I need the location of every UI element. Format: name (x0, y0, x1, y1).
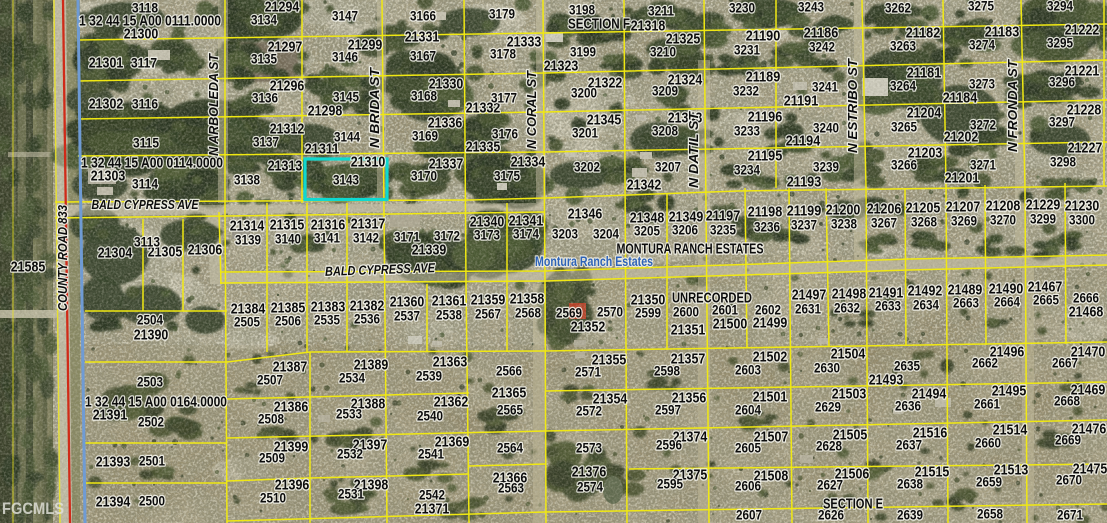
svg-text:3113: 3113 (134, 234, 160, 249)
svg-text:3136: 3136 (252, 90, 278, 105)
svg-text:3144: 3144 (334, 129, 360, 144)
svg-text:2510: 2510 (260, 490, 286, 505)
svg-text:2660: 2660 (975, 435, 1001, 450)
svg-text:3231: 3231 (734, 42, 760, 57)
svg-text:2504: 2504 (137, 312, 163, 327)
svg-text:2659: 2659 (976, 474, 1002, 489)
svg-text:3295: 3295 (1047, 35, 1073, 50)
svg-text:2506: 2506 (275, 313, 301, 328)
svg-text:3234: 3234 (734, 162, 760, 177)
svg-text:21390: 21390 (134, 328, 169, 344)
svg-text:3134: 3134 (251, 12, 277, 27)
svg-text:2627: 2627 (817, 477, 843, 492)
svg-text:2599: 2599 (635, 305, 661, 320)
svg-text:3273: 3273 (969, 76, 995, 91)
svg-text:3264: 3264 (890, 78, 916, 93)
svg-text:3138: 3138 (234, 172, 260, 187)
svg-text:3206: 3206 (672, 222, 698, 237)
svg-text:21346: 21346 (568, 207, 603, 223)
svg-text:2534: 2534 (339, 370, 365, 385)
svg-text:N CORAL ST: N CORAL ST (524, 70, 539, 149)
svg-text:3275: 3275 (968, 0, 994, 13)
svg-text:21323: 21323 (544, 59, 579, 75)
svg-text:3117: 3117 (131, 55, 157, 70)
svg-text:3237: 3237 (791, 217, 817, 232)
svg-text:2536: 2536 (354, 311, 380, 326)
svg-text:3168: 3168 (411, 88, 437, 103)
svg-text:2607: 2607 (736, 507, 762, 522)
svg-text:2605: 2605 (735, 440, 761, 455)
svg-text:1 32 44 15 A00 0111.0000: 1 32 44 15 A00 0111.0000 (79, 13, 221, 29)
svg-text:SECTION E: SECTION E (823, 496, 883, 512)
svg-text:2671: 2671 (1057, 507, 1083, 522)
svg-text:2631: 2631 (795, 301, 821, 316)
svg-text:3298: 3298 (1050, 154, 1076, 169)
svg-text:3274: 3274 (969, 37, 995, 52)
svg-text:3200: 3200 (571, 85, 597, 100)
svg-text:21306: 21306 (188, 243, 223, 259)
svg-text:2539: 2539 (416, 368, 442, 383)
svg-text:3240: 3240 (813, 120, 839, 135)
svg-text:2570: 2570 (597, 304, 623, 319)
svg-text:FGCMLS: FGCMLS (2, 499, 64, 518)
svg-text:3300: 3300 (1069, 212, 1095, 227)
svg-text:3171: 3171 (394, 229, 420, 244)
svg-text:BALD CYPRESS AVE: BALD CYPRESS AVE (92, 197, 199, 212)
svg-text:3265: 3265 (891, 119, 917, 134)
svg-text:2604: 2604 (735, 402, 761, 417)
svg-text:2629: 2629 (815, 399, 841, 414)
svg-text:2606: 2606 (735, 478, 761, 493)
svg-text:3142: 3142 (353, 230, 379, 245)
svg-text:3170: 3170 (411, 168, 437, 183)
svg-text:2501: 2501 (139, 453, 165, 468)
svg-text:21331: 21331 (405, 30, 440, 46)
svg-text:3236: 3236 (754, 219, 780, 234)
svg-text:2568: 2568 (515, 305, 541, 320)
svg-text:2535: 2535 (314, 312, 340, 327)
svg-text:2572: 2572 (576, 403, 602, 418)
svg-text:2531: 2531 (338, 486, 364, 501)
svg-text:3114: 3114 (132, 176, 158, 191)
svg-text:3272: 3272 (970, 117, 996, 132)
svg-text:3176: 3176 (492, 126, 518, 141)
svg-text:3202: 3202 (574, 159, 600, 174)
svg-text:3232: 3232 (733, 83, 759, 98)
svg-text:3242: 3242 (809, 39, 835, 54)
svg-text:3199: 3199 (570, 44, 596, 59)
svg-text:3209: 3209 (652, 83, 678, 98)
svg-text:3296: 3296 (1049, 74, 1075, 89)
svg-text:2603: 2603 (735, 362, 761, 377)
svg-text:2636: 2636 (895, 398, 921, 413)
svg-text:2566: 2566 (496, 363, 522, 378)
svg-text:2662: 2662 (972, 355, 998, 370)
svg-text:3116: 3116 (132, 96, 158, 111)
svg-text:2639: 2639 (897, 507, 923, 522)
svg-text:3147: 3147 (332, 8, 358, 23)
svg-text:3178: 3178 (490, 46, 516, 61)
svg-text:2665: 2665 (1033, 292, 1059, 307)
svg-text:21585: 21585 (11, 260, 46, 276)
svg-text:2666: 2666 (1073, 290, 1099, 305)
svg-text:3210: 3210 (650, 44, 676, 59)
svg-text:2668: 2668 (1054, 393, 1080, 408)
svg-text:UNRECORDED: UNRECORDED (672, 290, 752, 306)
svg-text:21468: 21468 (1069, 305, 1104, 321)
svg-text:3174: 3174 (513, 226, 539, 241)
svg-text:3173: 3173 (474, 227, 500, 242)
svg-text:2532: 2532 (337, 446, 363, 461)
svg-text:21310: 21310 (351, 155, 386, 171)
svg-text:3243: 3243 (798, 0, 824, 14)
svg-text:2509: 2509 (259, 450, 285, 465)
svg-text:21371: 21371 (415, 502, 450, 518)
svg-text:3139: 3139 (235, 232, 261, 247)
svg-text:21302: 21302 (89, 97, 124, 113)
svg-text:2505: 2505 (234, 314, 260, 329)
svg-text:3172: 3172 (434, 228, 460, 243)
svg-text:N ARBOLEDA ST: N ARBOLEDA ST (206, 53, 221, 156)
svg-text:3175: 3175 (494, 168, 520, 183)
svg-text:3169: 3169 (412, 128, 438, 143)
svg-text:2628: 2628 (816, 438, 842, 453)
svg-text:21342: 21342 (627, 178, 662, 194)
svg-text:3198: 3198 (569, 2, 595, 17)
svg-text:2632: 2632 (834, 300, 860, 315)
svg-text:2600: 2600 (673, 304, 699, 319)
svg-text:21201: 21201 (945, 171, 980, 187)
svg-text:2563: 2563 (498, 480, 524, 495)
svg-text:21352: 21352 (571, 320, 606, 336)
svg-text:21184: 21184 (943, 91, 978, 107)
svg-text:21304: 21304 (98, 246, 133, 262)
svg-text:3135: 3135 (251, 51, 277, 66)
svg-text:3115: 3115 (133, 135, 159, 150)
svg-text:2595: 2595 (657, 476, 683, 491)
svg-text:2571: 2571 (575, 364, 601, 379)
svg-text:2661: 2661 (974, 396, 1000, 411)
svg-text:21298: 21298 (308, 104, 343, 120)
svg-text:2540: 2540 (417, 408, 443, 423)
svg-text:2541: 2541 (418, 446, 444, 461)
svg-text:Montura Ranch Estates: Montura Ranch Estates (535, 254, 653, 269)
svg-text:21193: 21193 (787, 175, 822, 191)
svg-text:2634: 2634 (913, 297, 939, 312)
svg-text:21313: 21313 (268, 159, 303, 175)
svg-text:2638: 2638 (897, 476, 923, 491)
svg-text:3267: 3267 (871, 215, 897, 230)
svg-text:3179: 3179 (489, 6, 515, 21)
svg-text:2573: 2573 (576, 440, 602, 455)
svg-text:3294: 3294 (1047, 0, 1073, 13)
svg-text:2602: 2602 (755, 302, 781, 317)
svg-text:2574: 2574 (577, 479, 603, 494)
svg-text:2664: 2664 (994, 294, 1020, 309)
svg-text:3299: 3299 (1030, 211, 1056, 226)
svg-text:2502: 2502 (138, 414, 164, 429)
svg-text:3263: 3263 (890, 38, 916, 53)
svg-text:2630: 2630 (814, 360, 840, 375)
svg-text:N FRONDA ST: N FRONDA ST (1005, 59, 1020, 152)
svg-text:3167: 3167 (410, 48, 436, 63)
svg-text:3207: 3207 (655, 159, 681, 174)
svg-text:21351: 21351 (671, 323, 706, 339)
svg-text:2564: 2564 (497, 440, 523, 455)
svg-text:2503: 2503 (137, 374, 163, 389)
svg-text:2663: 2663 (953, 295, 979, 310)
svg-text:3271: 3271 (970, 157, 996, 172)
svg-text:3201: 3201 (572, 125, 598, 140)
svg-text:3137: 3137 (253, 134, 279, 149)
svg-text:2667: 2667 (1052, 355, 1078, 370)
svg-text:3177: 3177 (491, 90, 517, 105)
svg-text:2567: 2567 (475, 306, 501, 321)
svg-text:21335: 21335 (466, 140, 501, 156)
svg-text:2598: 2598 (654, 363, 680, 378)
svg-text:2507: 2507 (257, 372, 283, 387)
svg-text:2569: 2569 (556, 305, 582, 320)
svg-text:2542: 2542 (419, 487, 445, 502)
svg-text:3241: 3241 (812, 79, 838, 94)
svg-text:2508: 2508 (258, 411, 284, 426)
svg-text:1 32 44 15 A00 0114.0000: 1 32 44 15 A00 0114.0000 (81, 155, 223, 171)
svg-text:3140: 3140 (275, 231, 301, 246)
svg-text:1 32 44 15 A00 0164.0000: 1 32 44 15 A00 0164.0000 (85, 394, 227, 410)
svg-text:2670: 2670 (1056, 472, 1082, 487)
svg-text:2538: 2538 (436, 307, 462, 322)
svg-text:2597: 2597 (655, 402, 681, 417)
svg-text:21393: 21393 (96, 455, 131, 471)
svg-text:3235: 3235 (710, 222, 736, 237)
svg-text:3238: 3238 (831, 216, 857, 231)
svg-text:21198: 21198 (748, 205, 783, 221)
svg-text:N ESTRIBO ST: N ESTRIBO ST (845, 58, 860, 153)
svg-text:21365: 21365 (492, 386, 527, 402)
svg-text:2635: 2635 (894, 358, 920, 373)
svg-text:N DATIL ST: N DATIL ST (686, 111, 701, 188)
svg-text:3239: 3239 (813, 159, 839, 174)
svg-text:2637: 2637 (896, 437, 922, 452)
svg-text:COUNTY ROAD 833: COUNTY ROAD 833 (55, 204, 70, 311)
svg-text:3205: 3205 (634, 223, 660, 238)
svg-text:2633: 2633 (875, 298, 901, 313)
svg-text:21191: 21191 (784, 94, 819, 110)
svg-text:2596: 2596 (656, 437, 682, 452)
svg-text:21301: 21301 (89, 56, 124, 72)
svg-text:3270: 3270 (990, 212, 1016, 227)
svg-text:2565: 2565 (497, 402, 523, 417)
svg-text:21318: 21318 (631, 19, 666, 35)
svg-text:3268: 3268 (911, 214, 937, 229)
svg-text:3297: 3297 (1049, 114, 1075, 129)
svg-text:2658: 2658 (977, 506, 1003, 521)
svg-text:3204: 3204 (593, 226, 619, 241)
svg-text:2537: 2537 (394, 308, 420, 323)
svg-text:3262: 3262 (885, 0, 911, 15)
svg-text:21394: 21394 (96, 495, 131, 511)
svg-text:3203: 3203 (552, 226, 578, 241)
svg-text:3233: 3233 (734, 123, 760, 138)
svg-text:2669: 2669 (1055, 432, 1081, 447)
svg-text:N BRIDA ST: N BRIDA ST (367, 67, 382, 148)
svg-text:3166: 3166 (410, 8, 436, 23)
svg-text:21500: 21500 (713, 317, 748, 333)
svg-text:3230: 3230 (729, 0, 755, 15)
svg-text:3146: 3146 (332, 49, 358, 64)
svg-text:21376: 21376 (572, 465, 607, 481)
svg-text:3208: 3208 (652, 123, 678, 138)
svg-text:SECTION F: SECTION F (568, 16, 630, 32)
svg-text:3143: 3143 (333, 172, 359, 187)
svg-text:3145: 3145 (333, 89, 359, 104)
svg-text:2533: 2533 (336, 406, 362, 421)
svg-text:3141: 3141 (314, 230, 340, 245)
svg-text:2500: 2500 (139, 493, 165, 508)
svg-text:3269: 3269 (951, 213, 977, 228)
svg-text:3211: 3211 (648, 3, 674, 18)
svg-text:21339: 21339 (412, 243, 447, 259)
svg-text:21499: 21499 (753, 316, 788, 332)
svg-text:21194: 21194 (786, 134, 821, 150)
svg-text:3266: 3266 (891, 157, 917, 172)
svg-text:21493: 21493 (869, 373, 904, 389)
